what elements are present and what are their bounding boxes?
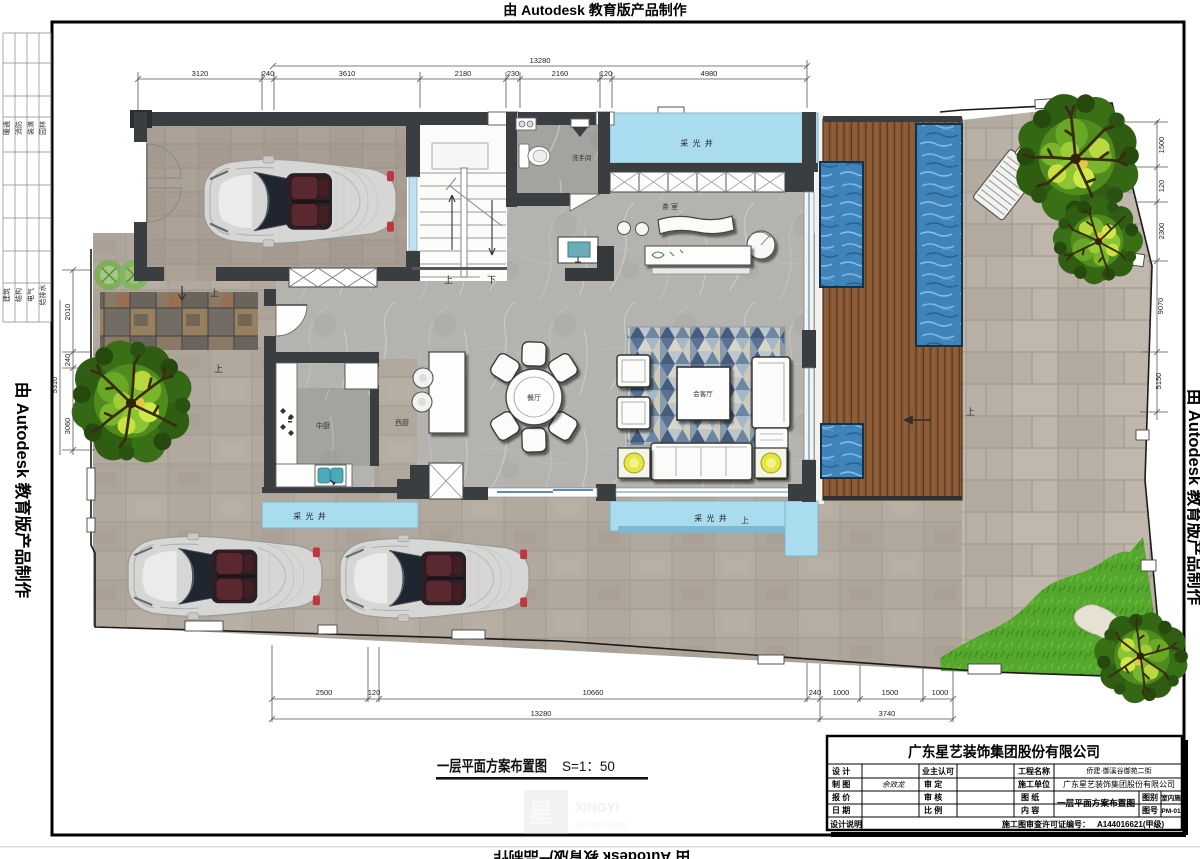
svg-text:240: 240 (63, 354, 72, 367)
svg-text:5310: 5310 (50, 377, 59, 394)
svg-text:审 核: 审 核 (924, 792, 942, 802)
svg-text:上: 上 (741, 516, 749, 525)
svg-text:13280: 13280 (530, 56, 551, 65)
svg-text:审 定: 审 定 (924, 779, 942, 789)
svg-text:设计说明: 设计说明 (830, 819, 862, 829)
svg-text:240: 240 (809, 688, 822, 697)
svg-text:1000: 1000 (932, 688, 949, 697)
svg-text:2010: 2010 (63, 304, 72, 321)
svg-text:3120: 3120 (192, 69, 209, 78)
svg-text:施工图审查许可证编号：: 施工图审查许可证编号： (1002, 819, 1090, 829)
svg-text:由 Autodesk 教育版产品制作: 由 Autodesk 教育版产品制作 (494, 848, 691, 859)
svg-text:广东星艺装饰集团股份有限公司: 广东星艺装饰集团股份有限公司 (908, 743, 1100, 761)
svg-text:上: 上 (210, 288, 219, 298)
svg-text:图号: 图号 (1142, 806, 1158, 815)
svg-text:1500: 1500 (1157, 137, 1166, 154)
svg-text:茶 室: 茶 室 (662, 202, 678, 211)
svg-text:10660: 10660 (583, 688, 604, 697)
svg-text:西厨: 西厨 (395, 419, 409, 427)
svg-text:报 价: 报 价 (832, 792, 851, 802)
svg-text:中厨: 中厨 (316, 421, 330, 430)
svg-text:2160: 2160 (552, 69, 569, 78)
svg-text:消防: 消防 (14, 121, 23, 135)
svg-text:DECORATION: DECORATION (575, 821, 628, 830)
svg-text:图别: 图别 (1142, 793, 1158, 802)
svg-text:2500: 2500 (316, 688, 333, 697)
svg-text:一层平面方案布置图: 一层平面方案布置图 (1057, 798, 1135, 808)
svg-text:5150: 5150 (1154, 373, 1163, 390)
svg-text:13280: 13280 (531, 709, 552, 718)
svg-text:由 Autodesk 教育版产品制作: 由 Autodesk 教育版产品制作 (13, 382, 33, 599)
svg-text:240: 240 (262, 69, 275, 78)
svg-text:3610: 3610 (339, 69, 356, 78)
svg-text:下: 下 (487, 275, 496, 285)
svg-text:建筑: 建筑 (2, 288, 11, 302)
svg-text:日 期: 日 期 (832, 805, 850, 815)
svg-text:9070: 9070 (1156, 298, 1165, 315)
svg-text:洗手间: 洗手间 (572, 153, 592, 162)
svg-text:室内施: 室内施 (1161, 793, 1181, 802)
svg-text:上: 上 (214, 364, 223, 374)
svg-text:XINGYI: XINGYI (575, 800, 619, 815)
svg-text:2300: 2300 (1157, 223, 1166, 240)
svg-text:由 Autodesk 教育版产品制作: 由 Autodesk 教育版产品制作 (503, 2, 687, 18)
svg-text:4980: 4980 (701, 69, 718, 78)
svg-text:广东星艺装饰集团股份有限公司: 广东星艺装饰集团股份有限公司 (1063, 779, 1175, 789)
svg-text:上: 上 (966, 407, 975, 417)
svg-text:1000: 1000 (833, 688, 850, 697)
svg-text:1500: 1500 (882, 688, 899, 697)
svg-text:120: 120 (600, 69, 613, 78)
svg-text:制 图: 制 图 (832, 779, 850, 789)
svg-text:侨建·御溪谷御苑二街: 侨建·御溪谷御苑二街 (1086, 766, 1151, 775)
svg-text:装潢: 装潢 (26, 121, 35, 135)
svg-text:3740: 3740 (879, 709, 896, 718)
svg-text:由 Autodesk 教育版产品制作: 由 Autodesk 教育版产品制作 (1185, 389, 1200, 606)
svg-text:上: 上 (444, 275, 453, 285)
svg-text:业主认可: 业主认可 (922, 766, 954, 776)
svg-text:佘效龙: 佘效龙 (882, 780, 906, 789)
svg-text:园林: 园林 (38, 121, 47, 135)
svg-text:2180: 2180 (455, 69, 472, 78)
svg-text:工程名称: 工程名称 (1018, 766, 1050, 776)
svg-text:施工单位: 施工单位 (1018, 779, 1050, 789)
svg-text:比 例: 比 例 (924, 805, 942, 815)
svg-text:A144016621(甲级): A144016621(甲级) (1097, 819, 1164, 829)
svg-text:S=1：50: S=1：50 (562, 759, 615, 774)
svg-text:给排水: 给排水 (38, 285, 47, 306)
svg-text:暖通: 暖通 (2, 121, 11, 135)
svg-text:星: 星 (528, 798, 554, 828)
svg-text:120: 120 (368, 688, 381, 697)
svg-text:会客厅: 会客厅 (693, 389, 713, 398)
svg-text:电气: 电气 (26, 288, 35, 302)
svg-text:内 容: 内 容 (1021, 805, 1039, 815)
svg-text:一层平面方案布置图: 一层平面方案布置图 (437, 757, 547, 775)
svg-text:采 光 井: 采 光 井 (694, 513, 727, 523)
svg-text:230: 230 (507, 69, 520, 78)
svg-text:设 计: 设 计 (832, 766, 850, 776)
svg-text:3060: 3060 (63, 418, 72, 435)
svg-text:餐厅: 餐厅 (527, 393, 541, 402)
svg-text:120: 120 (1157, 180, 1166, 193)
svg-text:采 光 井: 采 光 井 (293, 511, 326, 521)
svg-text:结构: 结构 (14, 288, 23, 302)
svg-text:采 光 井: 采 光 井 (680, 138, 713, 148)
svg-text:PM-01: PM-01 (1161, 808, 1181, 815)
svg-text:图 纸: 图 纸 (1021, 792, 1039, 802)
